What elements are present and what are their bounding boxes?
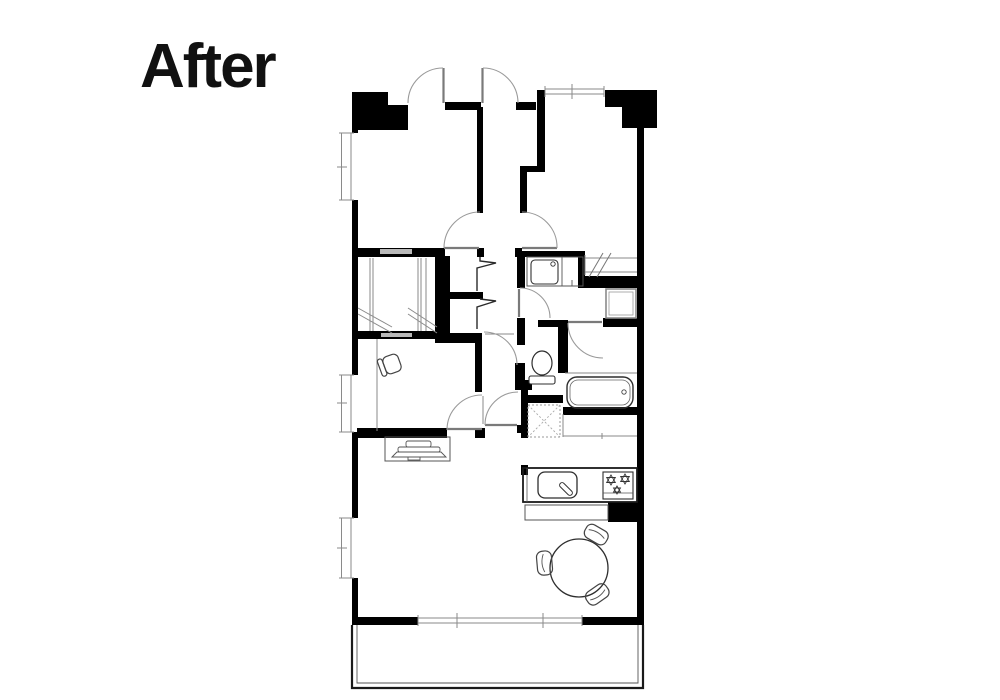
window bbox=[418, 613, 582, 628]
door-swing-arc bbox=[568, 323, 603, 358]
door-swing-arc bbox=[522, 212, 557, 248]
door-swing-arc bbox=[483, 68, 518, 103]
floor-plan bbox=[0, 0, 1000, 700]
door-swing-arc bbox=[447, 395, 482, 430]
dining-chair bbox=[582, 522, 610, 547]
kitchen-counter bbox=[523, 468, 637, 502]
vanity-basin bbox=[527, 257, 583, 286]
kitchen-sink bbox=[538, 472, 577, 498]
gas-stove bbox=[603, 472, 633, 499]
dining-chair bbox=[583, 581, 611, 607]
floor-plan-page: After bbox=[0, 0, 1000, 700]
folding-door-symbol bbox=[477, 299, 496, 329]
window bbox=[337, 518, 354, 578]
toilet bbox=[529, 351, 555, 384]
door-swing-arc bbox=[520, 288, 550, 318]
window bbox=[337, 375, 354, 432]
balcony bbox=[352, 625, 643, 688]
interior-window-slashed bbox=[585, 253, 637, 277]
washing-machine-space bbox=[528, 405, 560, 437]
door-swing-arc bbox=[485, 392, 518, 425]
door-swing-arc bbox=[444, 212, 480, 248]
counter-front bbox=[525, 505, 608, 520]
door-swing-arc bbox=[484, 332, 517, 365]
wall-gaps-layer bbox=[380, 249, 412, 337]
pipe-space-box bbox=[606, 289, 636, 318]
dining-table bbox=[550, 539, 608, 597]
folding-door-symbol bbox=[477, 257, 496, 291]
bathtub bbox=[567, 377, 633, 408]
window bbox=[545, 84, 604, 99]
window bbox=[337, 133, 354, 200]
door-swing-arc bbox=[408, 68, 443, 103]
desk-chair bbox=[377, 353, 403, 377]
tv-board bbox=[385, 437, 450, 461]
